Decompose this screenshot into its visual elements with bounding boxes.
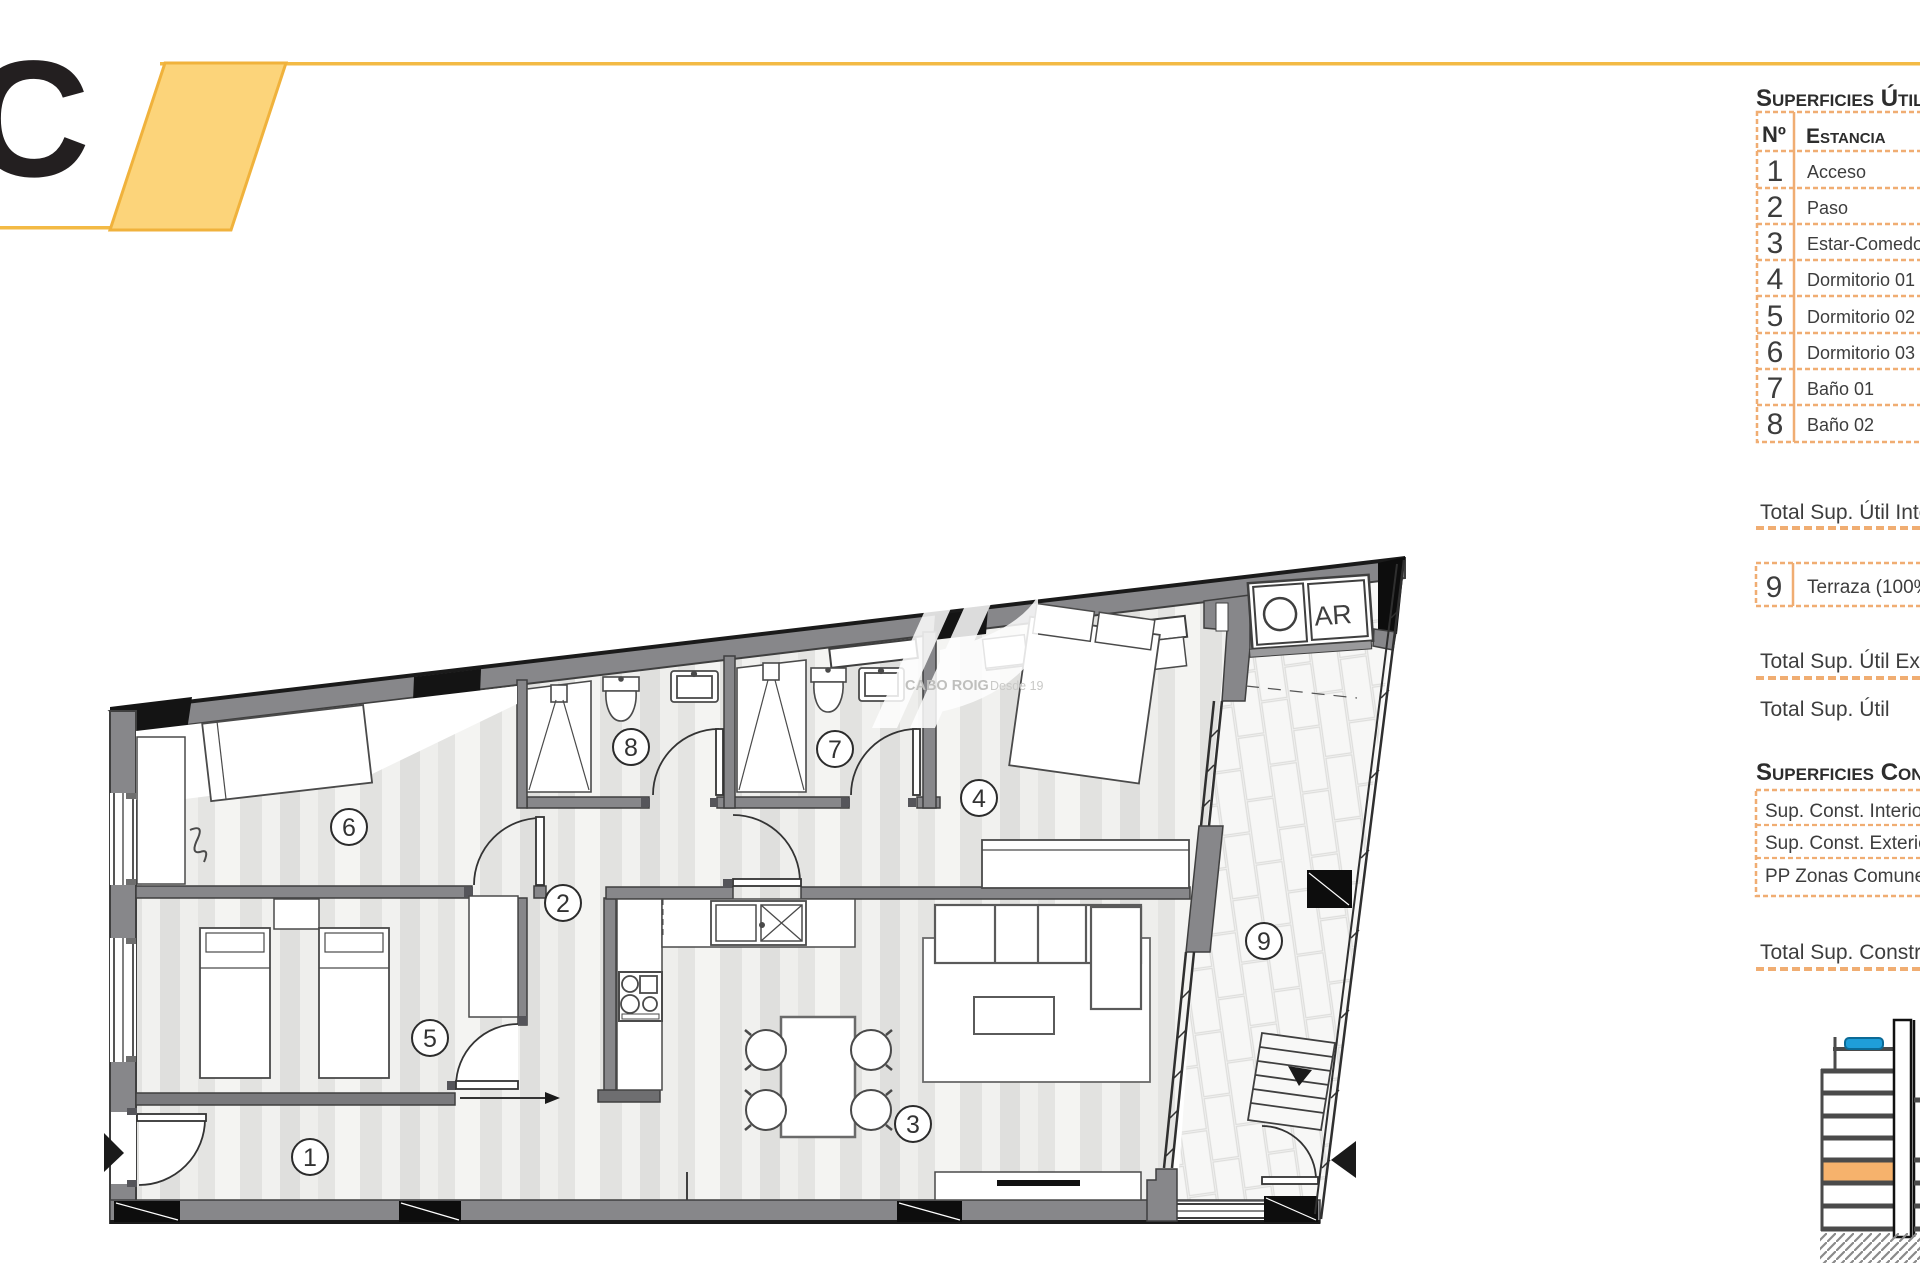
svg-text:AR: AR xyxy=(1313,599,1353,632)
svg-text:1: 1 xyxy=(303,1144,317,1172)
svg-text:5: 5 xyxy=(423,1025,437,1053)
svg-text:Acceso: Acceso xyxy=(1807,162,1866,182)
svg-text:Total Sup. Útil: Total Sup. Útil xyxy=(1760,698,1890,721)
svg-text:CABO ROIG: CABO ROIG xyxy=(905,678,989,694)
svg-text:6: 6 xyxy=(1767,336,1784,369)
svg-text:2: 2 xyxy=(556,890,570,918)
svg-text:7: 7 xyxy=(1767,372,1784,405)
svg-text:Paso: Paso xyxy=(1807,198,1848,218)
svg-text:3: 3 xyxy=(906,1111,920,1139)
svg-text:Estar-Comedor: Estar-Comedor xyxy=(1807,234,1920,254)
svg-text:5: 5 xyxy=(1767,300,1784,333)
svg-text:9: 9 xyxy=(1766,571,1783,604)
svg-text:Superficies Construidas: Superficies Construidas xyxy=(1756,759,1920,786)
svg-text:Total Sup. Útil Exterior: Total Sup. Útil Exterior xyxy=(1760,650,1920,673)
svg-text:6: 6 xyxy=(342,814,356,842)
svg-text:Dormitorio 02: Dormitorio 02 xyxy=(1807,307,1915,327)
svg-text:8: 8 xyxy=(1767,408,1784,441)
svg-text:Dormitorio 01: Dormitorio 01 xyxy=(1807,270,1915,290)
svg-text:Desde 19: Desde 19 xyxy=(990,679,1044,693)
svg-text:4: 4 xyxy=(1767,263,1784,296)
svg-text:Total Sup. Construida: Total Sup. Construida xyxy=(1760,941,1920,964)
svg-text:Sup. Const. Interior: Sup. Const. Interior xyxy=(1765,801,1920,822)
svg-text:Sup. Const. Exterior: Sup. Const. Exterior xyxy=(1765,833,1920,854)
svg-text:Nº: Nº xyxy=(1762,122,1786,147)
svg-text:Baño 02: Baño 02 xyxy=(1807,415,1874,435)
svg-text:Total Sup. Útil Interior: Total Sup. Útil Interior xyxy=(1760,501,1920,524)
svg-text:4: 4 xyxy=(972,785,986,813)
svg-text:3: 3 xyxy=(1767,227,1784,260)
svg-text:2: 2 xyxy=(1767,191,1784,224)
svg-text:PP Zonas Comunes: PP Zonas Comunes xyxy=(1765,866,1920,887)
svg-text:Baño 01: Baño 01 xyxy=(1807,379,1874,399)
svg-text:7: 7 xyxy=(828,736,842,764)
svg-text:Estancia: Estancia xyxy=(1806,125,1886,148)
svg-text:Superficies Útiles: Superficies Útiles xyxy=(1756,84,1920,112)
svg-text:Terraza (100%): Terraza (100%) xyxy=(1807,577,1920,598)
svg-text:1: 1 xyxy=(1767,155,1784,188)
svg-text:C: C xyxy=(0,27,90,212)
svg-text:9: 9 xyxy=(1257,928,1271,956)
svg-text:8: 8 xyxy=(624,734,638,762)
svg-text:Dormitorio 03: Dormitorio 03 xyxy=(1807,343,1915,363)
